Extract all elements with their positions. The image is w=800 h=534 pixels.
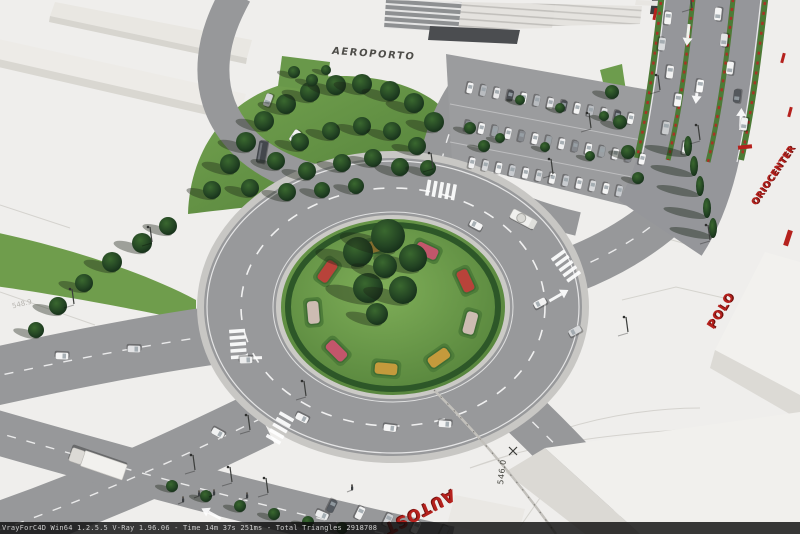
render-status-text: VrayForC4D Win64 1.2.5.5 V-Ray 1.96.06 -… <box>2 524 377 532</box>
roundabout <box>197 151 589 463</box>
render-viewport: AEROPORTO ORIOCENTER POLO AUTOST 546.0 5… <box>0 0 800 534</box>
render-status-bar: VrayForC4D Win64 1.2.5.5 V-Ray 1.96.06 -… <box>0 522 800 534</box>
scene-3d-render <box>0 0 800 534</box>
